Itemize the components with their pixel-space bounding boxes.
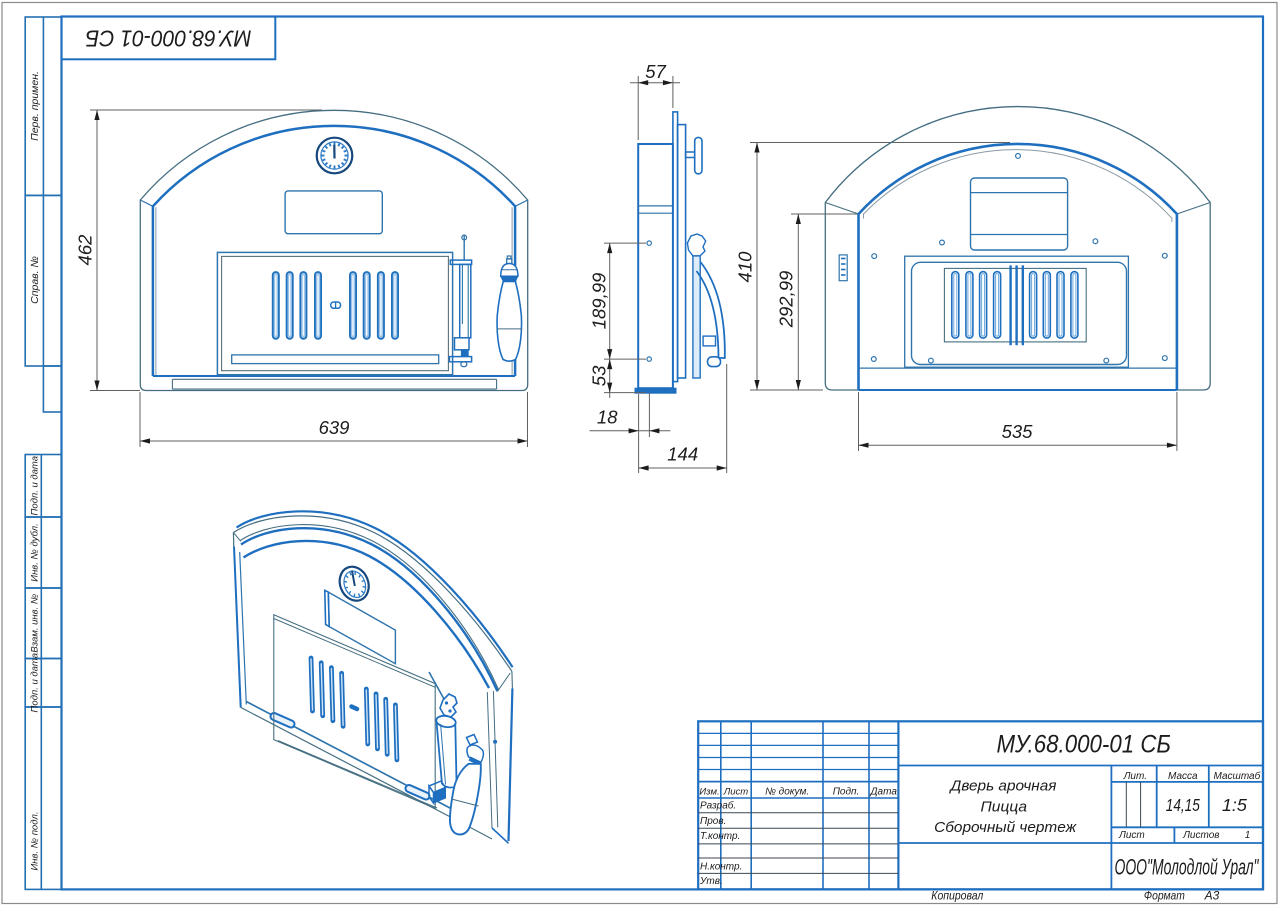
svg-text:Листов: Листов xyxy=(1182,830,1219,841)
svg-text:Дата: Дата xyxy=(870,787,898,798)
svg-text:1:5: 1:5 xyxy=(1222,795,1247,815)
svg-text:Инв. № подл.: Инв. № подл. xyxy=(29,812,40,871)
svg-text:Подп. и дата: Подп. и дата xyxy=(29,653,40,712)
svg-text:Пицца: Пицца xyxy=(981,799,1028,816)
svg-text:410: 410 xyxy=(735,251,756,283)
svg-text:292,99: 292,99 xyxy=(776,271,797,329)
svg-text:Пров.: Пров. xyxy=(700,816,726,827)
svg-text:Лист: Лист xyxy=(723,787,749,798)
svg-text:535: 535 xyxy=(1002,421,1034,442)
svg-text:Дверь арочная: Дверь арочная xyxy=(948,778,1056,795)
svg-text:Лит.: Лит. xyxy=(1123,771,1147,782)
svg-text:Разраб.: Разраб. xyxy=(700,800,736,812)
svg-text:Подп. и дата: Подп. и дата xyxy=(29,456,40,515)
svg-text:639: 639 xyxy=(319,417,350,438)
svg-text:А3: А3 xyxy=(1204,889,1220,903)
svg-text:144: 144 xyxy=(667,444,698,465)
svg-text:Масса: Масса xyxy=(1168,771,1198,782)
svg-text:Утв.: Утв. xyxy=(699,876,723,887)
svg-text:18: 18 xyxy=(597,407,618,428)
svg-text:МУ.68.000-01 СБ: МУ.68.000-01 СБ xyxy=(996,731,1171,759)
svg-text:Формат: Формат xyxy=(1144,889,1185,903)
svg-text:Изм.: Изм. xyxy=(699,787,719,798)
svg-text:Сборочный чертеж: Сборочный чертеж xyxy=(934,819,1077,836)
svg-text:Взам. инв. №: Взам. инв. № xyxy=(29,594,40,653)
svg-text:Копировал: Копировал xyxy=(931,889,983,903)
svg-text:ООО"Молодлой Урал": ООО"Молодлой Урал" xyxy=(1115,855,1260,880)
svg-text:Масштаб: Масштаб xyxy=(1214,770,1261,782)
svg-text:53: 53 xyxy=(589,365,610,386)
svg-text:Лист: Лист xyxy=(1118,830,1145,841)
svg-text:Н.контр.: Н.контр. xyxy=(700,861,742,872)
svg-text:Инв. № дубл.: Инв. № дубл. xyxy=(29,523,40,581)
svg-text:1: 1 xyxy=(1245,830,1251,841)
svg-text:Т.контр.: Т.контр. xyxy=(700,831,740,842)
svg-text:№ докум.: № докум. xyxy=(765,787,809,798)
svg-text:462: 462 xyxy=(75,234,96,266)
svg-text:189,99: 189,99 xyxy=(589,273,610,330)
svg-text:Справ. №: Справ. № xyxy=(29,256,41,304)
svg-text:Перв. примен.: Перв. примен. xyxy=(29,71,41,141)
svg-text:57: 57 xyxy=(645,61,666,82)
svg-text:Подп.: Подп. xyxy=(833,787,860,798)
svg-text:МУ.68.000-01 СБ: МУ.68.000-01 СБ xyxy=(85,25,251,51)
svg-text:14,15: 14,15 xyxy=(1166,795,1200,815)
